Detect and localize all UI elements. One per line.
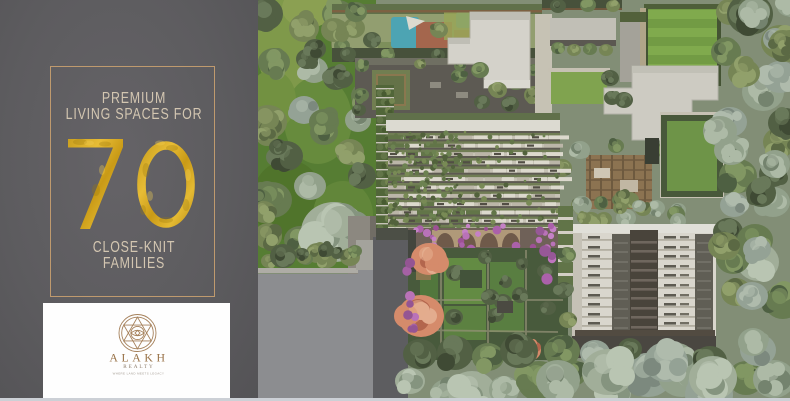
svg-text:REALTY: REALTY [123, 364, 154, 370]
svg-text:ALAKH: ALAKH [109, 351, 168, 365]
svg-text:WHERE LAND MEETS LEGACY: WHERE LAND MEETS LEGACY [113, 371, 165, 375]
